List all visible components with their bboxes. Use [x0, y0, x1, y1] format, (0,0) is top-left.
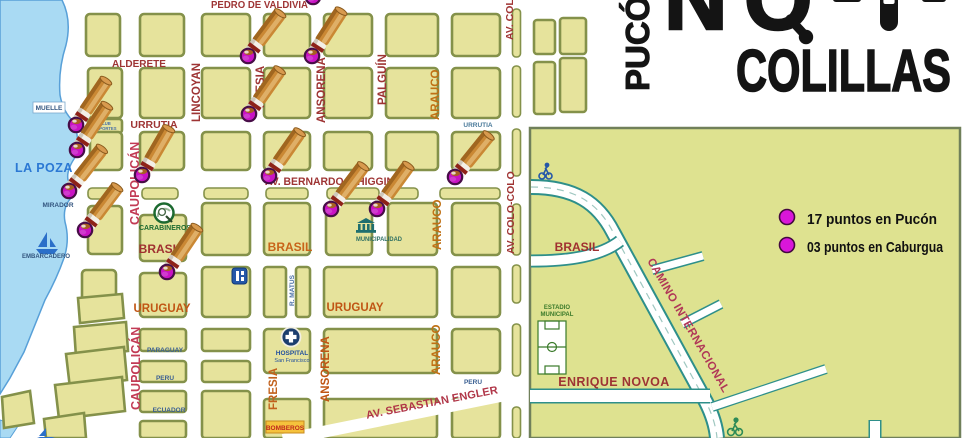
svg-text:San Francisco: San Francisco	[274, 358, 309, 364]
svg-text:CAUPOLICÁN: CAUPOLICÁN	[128, 327, 143, 410]
svg-text:ECUADOR: ECUADOR	[153, 407, 186, 414]
svg-text:PARAGUAY: PARAGUAY	[147, 347, 184, 354]
svg-text:BOMBEROS: BOMBEROS	[266, 425, 305, 432]
svg-text:MUNICIPAL: MUNICIPAL	[541, 312, 574, 318]
svg-text:N: N	[664, 0, 728, 48]
svg-text:HOSPITAL: HOSPITAL	[276, 350, 308, 357]
svg-text:ARAUCO: ARAUCO	[432, 199, 444, 250]
svg-text:PEDRO DE VALDIVIA: PEDRO DE VALDIVIA	[211, 0, 308, 11]
svg-text:R. MATUS: R. MATUS	[289, 274, 296, 306]
svg-text:MUELLE: MUELLE	[36, 105, 63, 112]
svg-text:ALDERETE: ALDERETE	[112, 59, 166, 70]
svg-text:CARABINEROS: CARABINEROS	[139, 225, 191, 232]
svg-text:URUGUAY: URUGUAY	[133, 303, 190, 315]
svg-text:MUNICIPALIDAD: MUNICIPALIDAD	[356, 236, 402, 243]
svg-text:ARAUCO: ARAUCO	[430, 69, 442, 120]
svg-text:ARAUCO: ARAUCO	[431, 324, 443, 375]
svg-text:URUGUAY: URUGUAY	[326, 302, 383, 314]
svg-text:PALGUÍN: PALGUÍN	[376, 54, 389, 105]
svg-text:MIRADOR: MIRADOR	[42, 202, 73, 209]
svg-text:URRUTIA: URRUTIA	[463, 122, 493, 129]
svg-text:ENRIQUE NOVOA: ENRIQUE NOVOA	[558, 375, 669, 389]
svg-text:LA POZA: LA POZA	[15, 161, 73, 175]
svg-text:FRESIA: FRESIA	[268, 368, 280, 410]
svg-text:COLILLAS: COLILLAS	[736, 38, 951, 104]
svg-text:AV. COLO-COLO: AV. COLO-COLO	[504, 0, 516, 40]
svg-text:PUCÓN: PUCÓN	[619, 0, 656, 91]
svg-text:ANSORENA: ANSORENA	[316, 57, 328, 123]
svg-text:ANSORENA: ANSORENA	[320, 336, 332, 402]
svg-text:LINCOYAN: LINCOYAN	[191, 63, 203, 122]
svg-text:BRASIL: BRASIL	[555, 240, 600, 254]
svg-text:EMBARCADERO: EMBARCADERO	[22, 254, 70, 260]
svg-text:ESTADIO: ESTADIO	[544, 305, 571, 311]
svg-text:PERU: PERU	[156, 375, 174, 382]
svg-text:CAUPOLICÁN: CAUPOLICÁN	[127, 142, 142, 225]
svg-text:PERU: PERU	[464, 379, 482, 386]
svg-text:17 puntos en Pucón: 17 puntos en Pucón	[807, 211, 937, 228]
svg-text:AV. COLO-COLO: AV. COLO-COLO	[505, 171, 517, 254]
svg-text:03 puntos en Caburgua: 03 puntos en Caburgua	[807, 239, 944, 256]
svg-text:AV. BERNARDO O'HIGGINS: AV. BERNARDO O'HIGGINS	[265, 176, 401, 188]
svg-text:BRASIL: BRASIL	[268, 240, 313, 254]
